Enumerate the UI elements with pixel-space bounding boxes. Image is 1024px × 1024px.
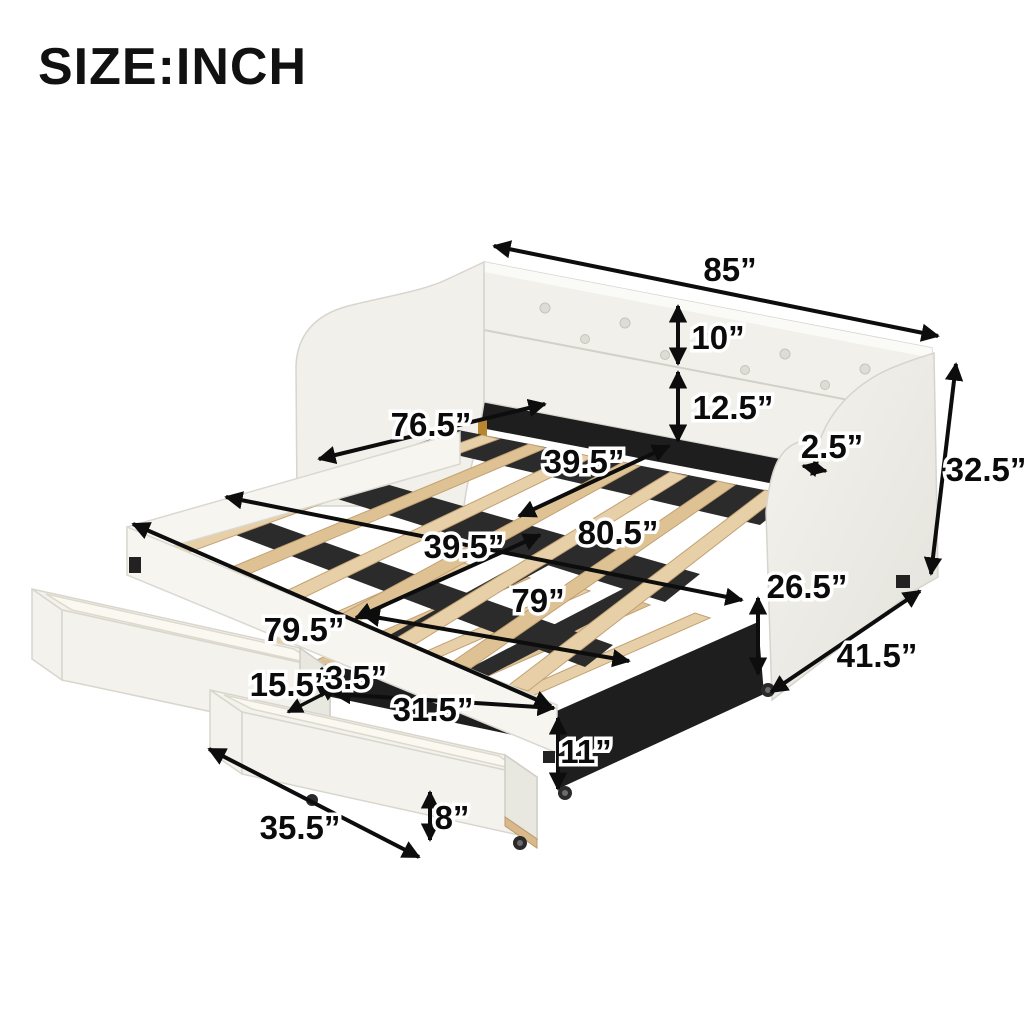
dim-2-5-label: 2.5” — [801, 428, 863, 465]
dim-35-5-label: 35.5” — [260, 809, 341, 846]
bed-foot — [543, 751, 555, 763]
dim-11-label: 11” — [560, 733, 611, 770]
dim-3-5-label: 3.5” — [325, 659, 387, 696]
dim-39-5-trundle-label: 39.5” — [424, 528, 505, 565]
dim-12-5-label: 12.5” — [693, 389, 774, 426]
dim-10-label: 10” — [691, 319, 744, 356]
dim-79-label: 79” — [511, 582, 564, 619]
bed-foot — [129, 557, 141, 573]
dim-76-5-label: 76.5” — [391, 406, 472, 443]
dim-31-5-label: 31.5” — [393, 691, 474, 728]
dim-26-5-label: 26.5” — [767, 568, 848, 605]
dim-8-label: 8” — [435, 799, 470, 836]
bed-frame-rails — [127, 432, 557, 763]
dim-15-5-label: 15.5” — [250, 666, 331, 703]
hinge-hardware — [478, 420, 487, 436]
dim-85-label: 85” — [703, 251, 756, 288]
diagram-canvas: 85” 10” 12.5” 76.5” 39.5” 2.5” 32.5” 80.… — [0, 0, 1024, 1024]
dim-32-5-label: 32.5” — [946, 451, 1024, 488]
arm-foot — [896, 575, 910, 588]
daybed-dimension-diagram: 85” 10” 12.5” 76.5” 39.5” 2.5” 32.5” 80.… — [0, 0, 1024, 1024]
dim-80-5-label: 80.5” — [578, 514, 659, 551]
page-title: SIZE:INCH — [38, 38, 307, 96]
dim-41-5-label: 41.5” — [837, 637, 918, 674]
dim-79-5-label: 79.5” — [264, 611, 345, 648]
dim-39-5-upper-label: 39.5” — [544, 443, 625, 480]
